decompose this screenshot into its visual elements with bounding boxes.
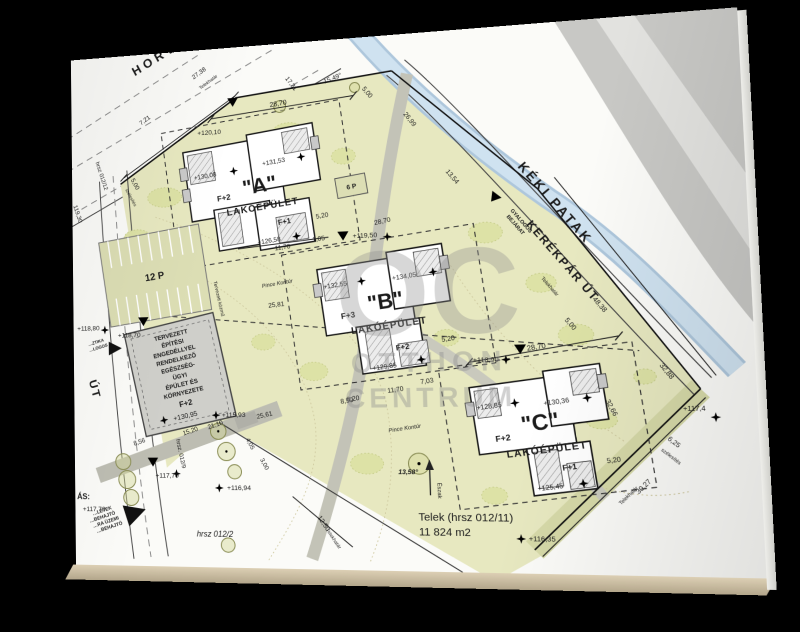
elevation-label: +116,35	[529, 536, 556, 544]
watermark-logo: OC	[334, 221, 523, 363]
parcel-title: Telek (hrsz 012/11)	[418, 512, 513, 525]
building-c-letter: "C"	[519, 409, 561, 438]
elevation-label: +116,94	[227, 485, 251, 493]
building-c-sub: F+1	[562, 461, 578, 473]
elevation-label: +115,93	[222, 412, 246, 420]
parcel-area: 11 824 m2	[419, 527, 472, 540]
watermark-otthon: OTTHON	[351, 344, 509, 379]
elevation-label: +118,80	[77, 325, 100, 333]
parking-lot-12p: 12 P	[99, 224, 212, 327]
note-as: ÁS:	[77, 492, 90, 501]
plan-sheet: 12 P 6 P TERVEZETT ÉPÍTÉSI ENGEDÉLLYEL R…	[71, 7, 767, 578]
north-angle: 13,58°	[398, 469, 418, 477]
photo-of-site-plan: 12 P 6 P TERVEZETT ÉPÍTÉSI ENGEDÉLLYEL R…	[0, 0, 800, 632]
site-plan-svg: 12 P 6 P TERVEZETT ÉPÍTÉSI ENGEDÉLLYEL R…	[71, 7, 767, 578]
watermark: OC OTTHON CENTRUM	[334, 221, 525, 414]
parcel-label-012-2: hrsz 012/2	[197, 529, 234, 539]
elevation-label: +117,70	[156, 472, 180, 479]
elevation-label: +120,10	[197, 129, 221, 138]
elevation-label: +117,4	[683, 405, 707, 413]
building-c-floors: F+2	[495, 432, 512, 444]
watermark-centrum: CENTRUM	[345, 380, 517, 415]
elevation-label: +118,70	[118, 332, 141, 340]
